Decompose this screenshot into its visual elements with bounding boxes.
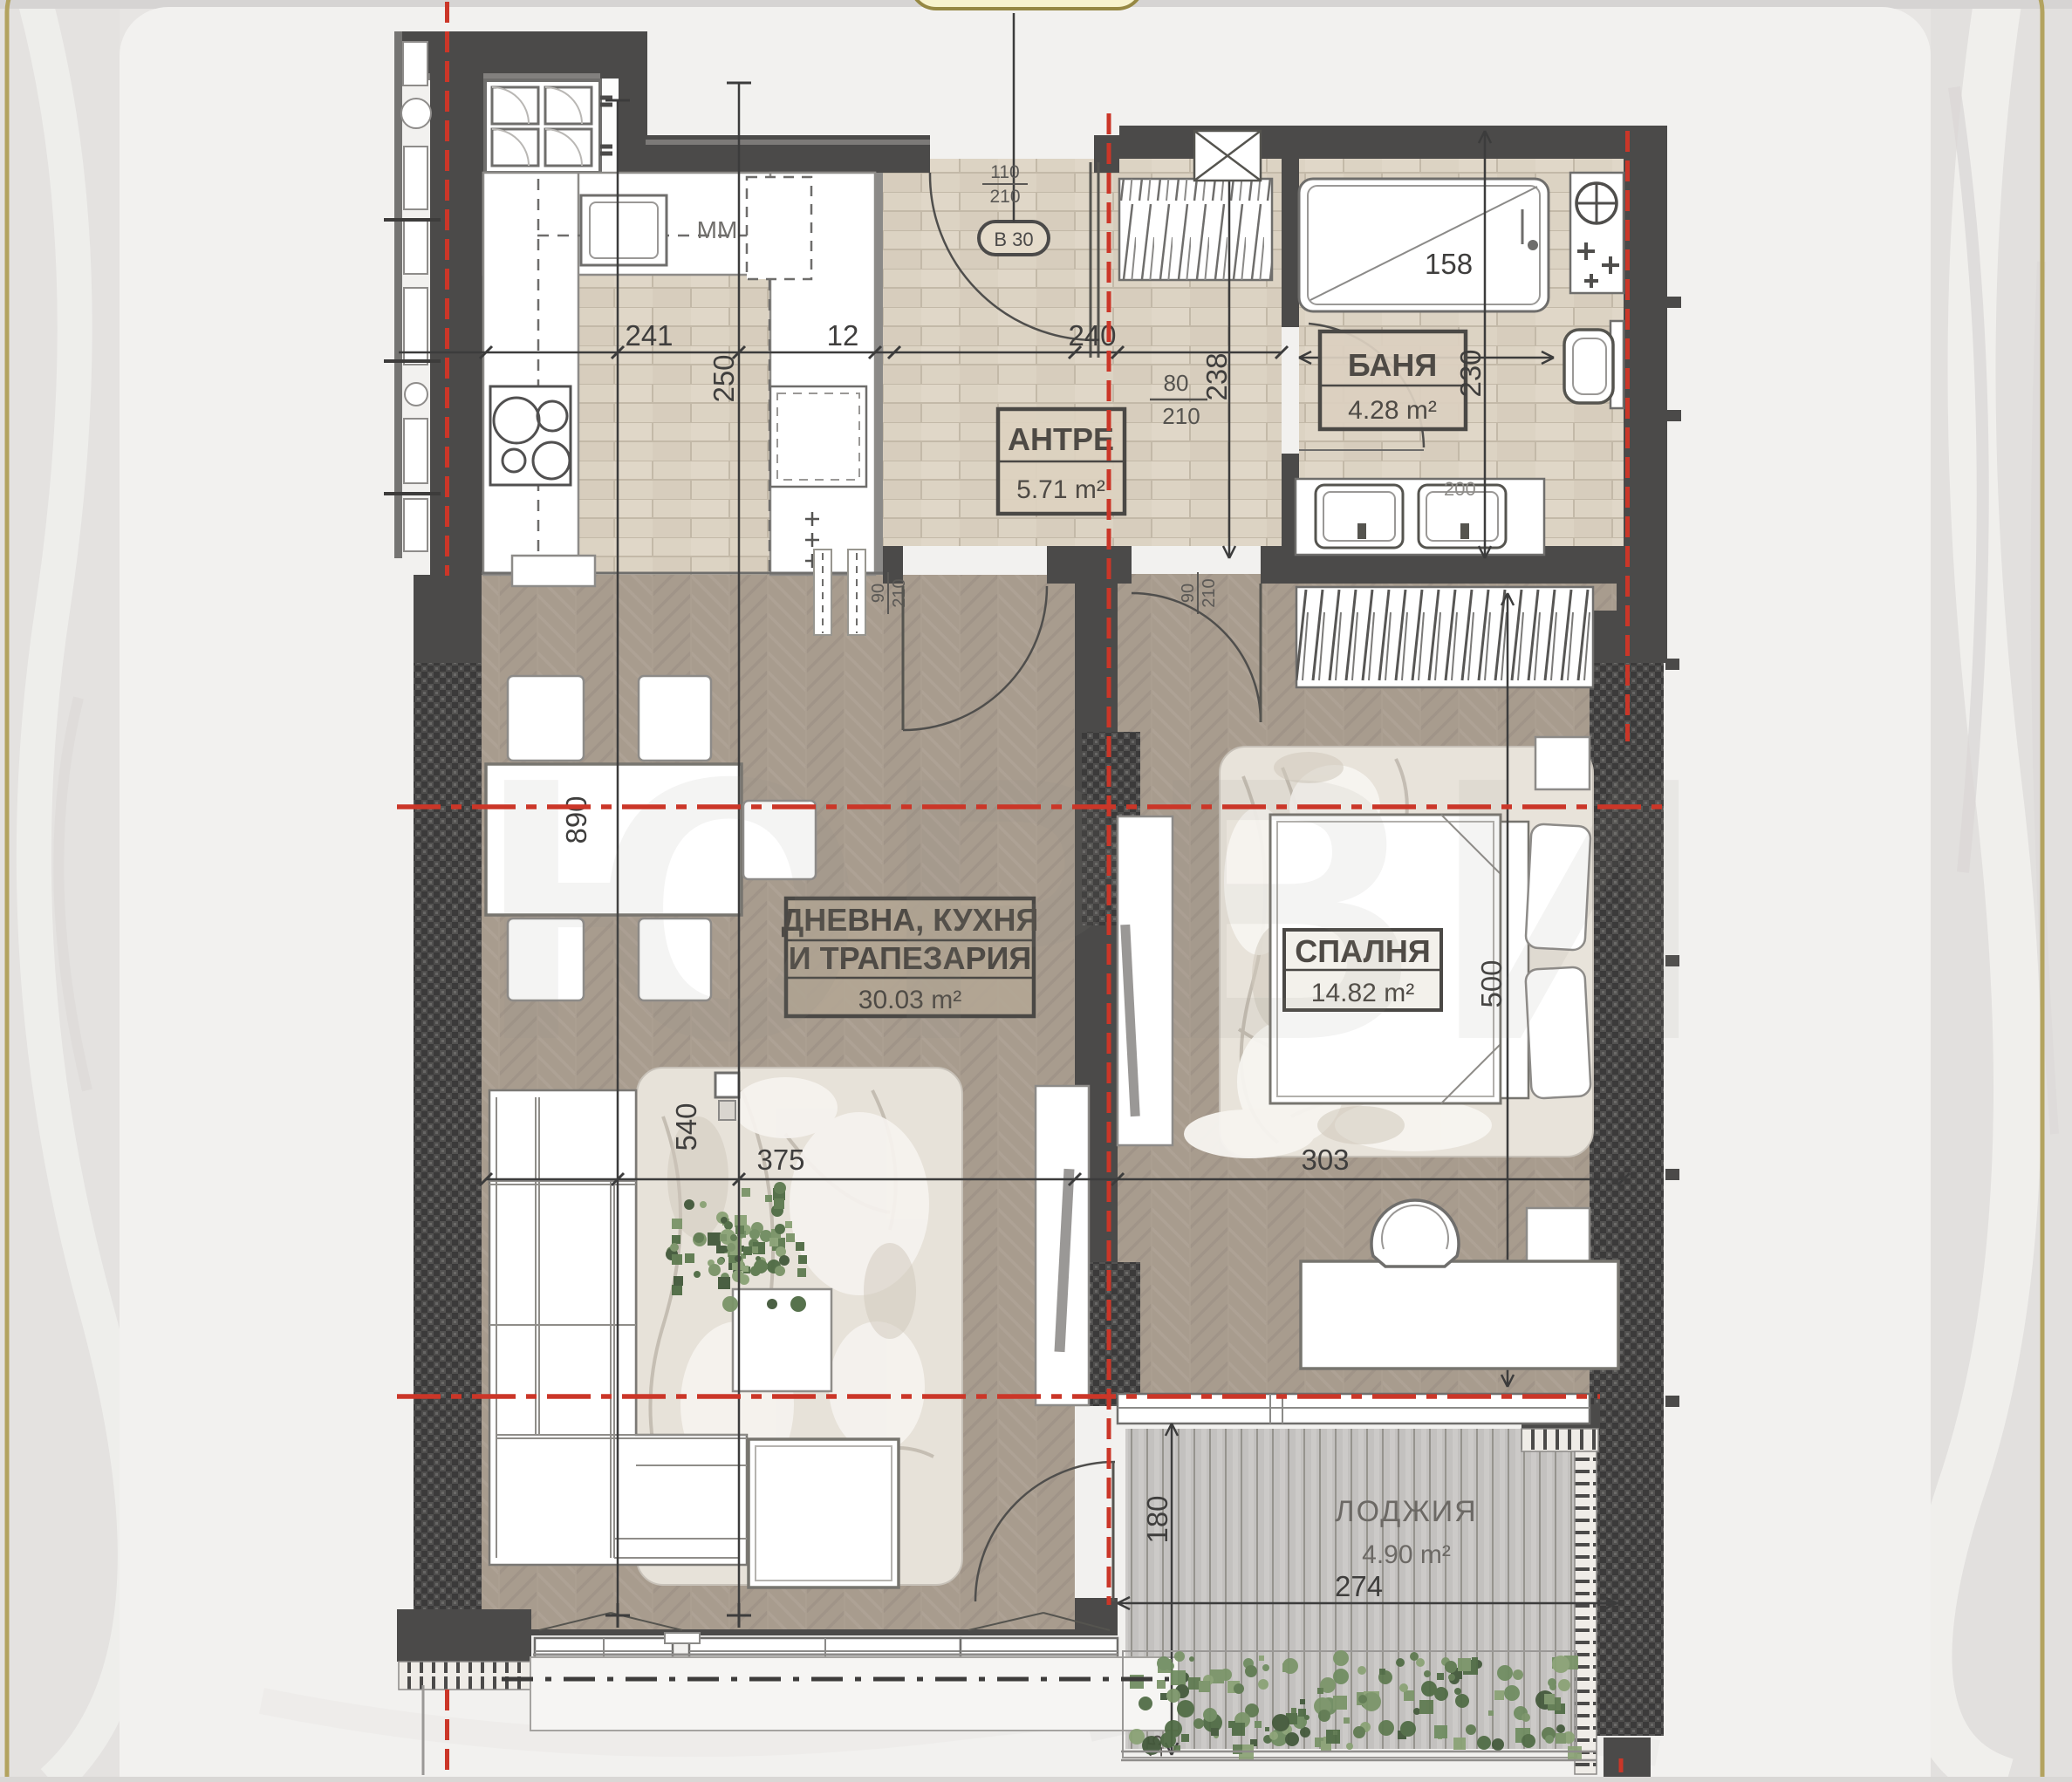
svg-text:274: 274	[1335, 1570, 1383, 1602]
svg-text:158: 158	[1425, 248, 1473, 280]
svg-text:4.28 m²: 4.28 m²	[1348, 396, 1437, 425]
svg-text:303: 303	[1301, 1144, 1349, 1176]
svg-text:230: 230	[1454, 349, 1487, 397]
svg-text:238: 238	[1200, 352, 1233, 400]
svg-text:B 30: B 30	[994, 229, 1033, 250]
svg-text:MM: MM	[697, 216, 738, 243]
svg-text:110: 110	[990, 162, 1019, 182]
svg-text:4.90 m²: 4.90 m²	[1362, 1540, 1451, 1569]
svg-text:90: 90	[869, 584, 888, 603]
svg-text:90: 90	[1179, 584, 1198, 603]
svg-text:ЮРВИ: ЮРВИ	[479, 700, 1720, 1118]
svg-text:250: 250	[708, 354, 740, 402]
svg-text:241: 241	[625, 319, 673, 352]
svg-text:210: 210	[890, 578, 909, 607]
svg-text:ЛОДЖИЯ: ЛОДЖИЯ	[1335, 1495, 1477, 1528]
svg-text:210: 210	[1200, 578, 1219, 607]
svg-text:210: 210	[989, 187, 1020, 207]
svg-text:180: 180	[1141, 1495, 1173, 1543]
svg-text:АНТРЕ: АНТРЕ	[1008, 421, 1114, 457]
svg-text:200: 200	[1444, 478, 1476, 500]
svg-text:БАНЯ: БАНЯ	[1348, 347, 1437, 383]
svg-text:12: 12	[827, 319, 859, 352]
svg-text:210: 210	[1162, 403, 1200, 429]
svg-text:375: 375	[756, 1144, 804, 1176]
svg-text:80: 80	[1164, 370, 1189, 396]
svg-text:5.71 m²: 5.71 m²	[1016, 475, 1105, 504]
